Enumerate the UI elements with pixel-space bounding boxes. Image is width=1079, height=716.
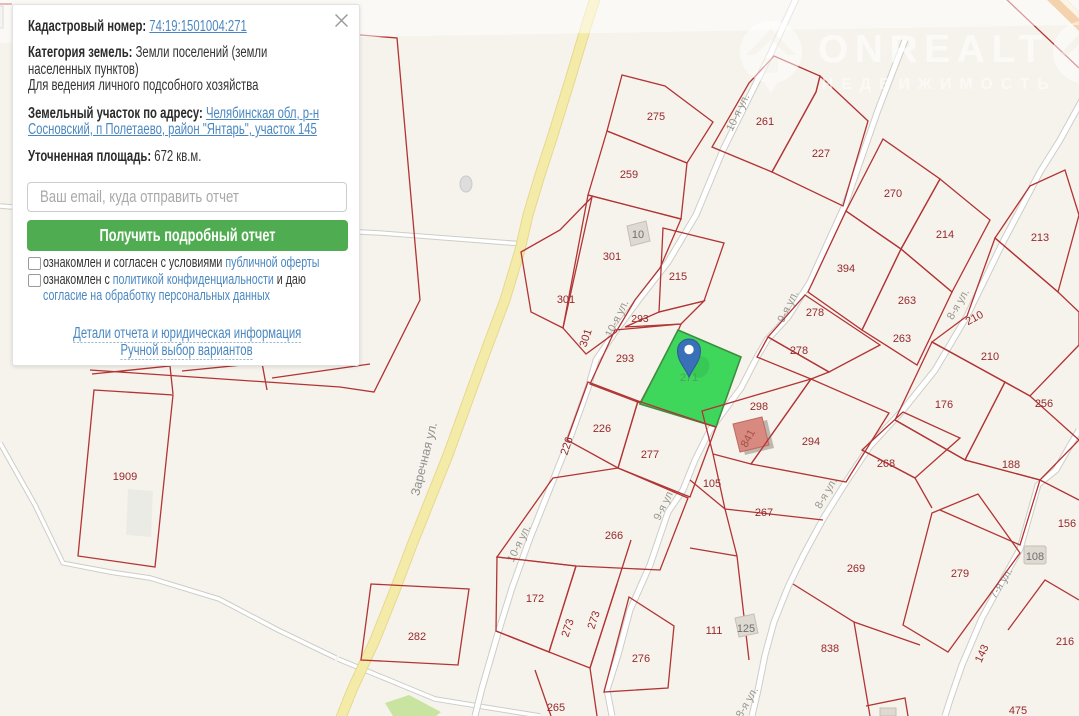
svg-text:259: 259	[620, 169, 638, 181]
svg-text:270: 270	[884, 188, 902, 200]
svg-text:261: 261	[756, 116, 774, 128]
svg-text:10: 10	[632, 229, 644, 241]
svg-text:277: 277	[641, 449, 659, 461]
svg-text:267: 267	[755, 507, 773, 519]
svg-text:143: 143	[973, 643, 992, 665]
svg-text:210: 210	[981, 351, 999, 363]
svg-text:105: 105	[703, 478, 721, 490]
svg-text:278: 278	[790, 345, 808, 357]
svg-text:265: 265	[547, 702, 565, 714]
svg-text:176: 176	[935, 399, 953, 411]
svg-text:301: 301	[578, 327, 595, 348]
svg-text:226: 226	[593, 423, 611, 435]
svg-text:227: 227	[812, 148, 830, 160]
svg-text:293: 293	[616, 353, 634, 365]
svg-text:266: 266	[605, 530, 623, 542]
svg-text:226: 226	[559, 435, 576, 456]
svg-text:282: 282	[408, 631, 426, 643]
svg-text:156: 156	[1058, 518, 1076, 530]
svg-text:838: 838	[821, 643, 839, 655]
svg-text:276: 276	[632, 653, 650, 665]
svg-text:273: 273	[586, 609, 603, 630]
svg-text:294: 294	[802, 436, 820, 448]
svg-text:263: 263	[898, 295, 916, 307]
svg-text:172: 172	[526, 593, 544, 605]
svg-text:475: 475	[1009, 705, 1027, 716]
svg-text:269: 269	[847, 563, 865, 575]
svg-text:263: 263	[893, 333, 911, 345]
svg-text:125: 125	[737, 623, 755, 635]
svg-text:298: 298	[750, 401, 768, 413]
svg-text:273: 273	[560, 617, 577, 638]
svg-text:214: 214	[936, 229, 954, 241]
svg-text:10-я ул.: 10-я ул.	[724, 92, 752, 133]
svg-text:278: 278	[806, 307, 824, 319]
svg-text:188: 188	[1002, 459, 1020, 471]
svg-text:215: 215	[669, 271, 687, 283]
svg-text:293: 293	[631, 313, 649, 325]
svg-text:7-я ул.: 7-я ул.	[987, 566, 1015, 601]
svg-text:279: 279	[951, 568, 969, 580]
svg-text:301: 301	[603, 251, 621, 263]
svg-text:216: 216	[1056, 636, 1074, 648]
svg-text:256: 256	[1035, 398, 1053, 410]
svg-text:301: 301	[557, 294, 575, 306]
svg-text:111: 111	[706, 625, 723, 637]
svg-text:108: 108	[1026, 551, 1044, 563]
svg-text:НЕДВИЖИМОСТЬ: НЕДВИЖИМОСТЬ	[822, 76, 1057, 93]
svg-text:275: 275	[647, 111, 665, 123]
svg-text:394: 394	[837, 263, 855, 275]
svg-text:1909: 1909	[113, 471, 137, 483]
svg-text:213: 213	[1031, 232, 1049, 244]
svg-text:ONREALT: ONREALT	[818, 28, 1049, 71]
